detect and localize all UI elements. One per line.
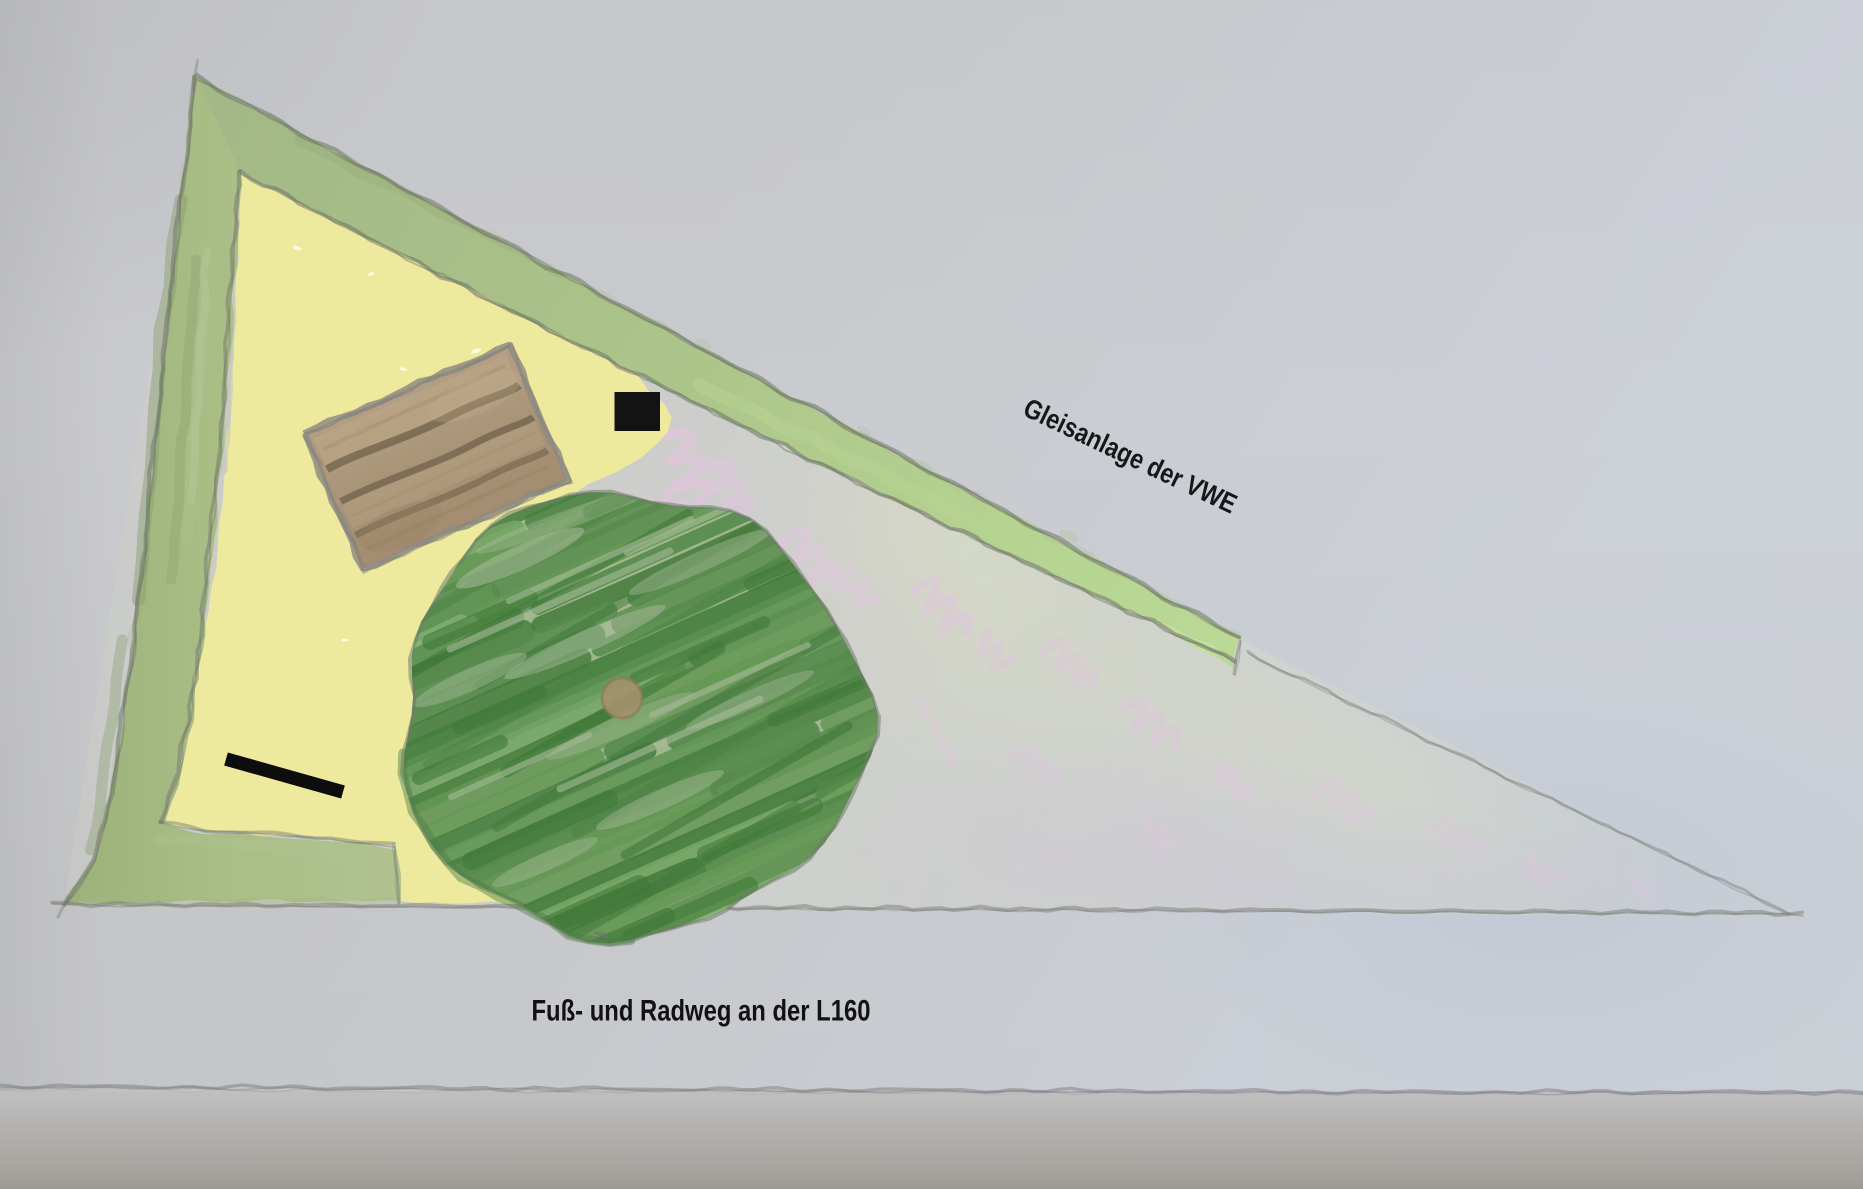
svg-text:Fuß- und Radweg an der L160: Fuß- und Radweg an der L160 (532, 994, 871, 1027)
